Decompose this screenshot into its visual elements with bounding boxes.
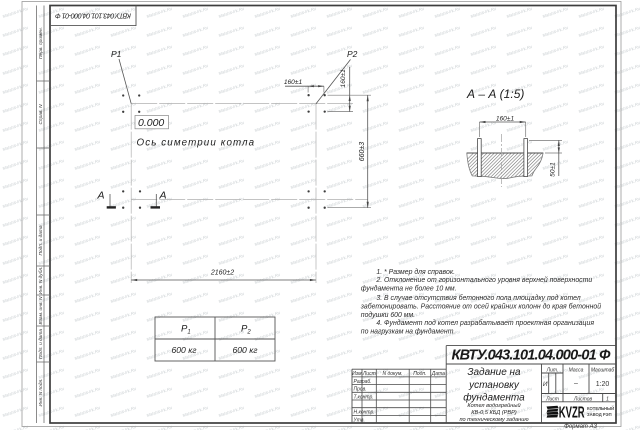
svg-text:600 кг: 600 кг [232,345,258,355]
svg-text:Взам. инв. N: Взам. инв. N [38,296,44,324]
svg-text:600 кг: 600 кг [171,345,197,355]
svg-text:А – А (1:5): А – А (1:5) [466,87,524,101]
svg-text:–: – [573,380,578,387]
svg-text:Инв. N дубл.: Инв. N дубл. [38,267,44,295]
svg-text:Справ. N: Справ. N [38,104,44,125]
svg-text:160±1: 160±1 [496,115,515,122]
svg-text:Н.контр.: Н.контр. [354,410,375,416]
svg-text:Подп. и дата: Подп. и дата [38,329,44,359]
svg-text:Задание на: Задание на [467,367,521,378]
svg-text:Перв. примен.: Перв. примен. [38,27,44,59]
svg-text:160±1: 160±1 [284,79,303,86]
svg-text:КВТУ.043.101.04.000-01 Ф: КВТУ.043.101.04.000-01 Ф [55,12,131,21]
svg-text:Формат А3: Формат А3 [564,424,597,430]
svg-text:Т.контр.: Т.контр. [354,394,374,400]
svg-text:Лит.: Лит. [546,367,559,373]
svg-text:1:20: 1:20 [596,381,610,388]
svg-text:N докум.: N докум. [382,371,402,377]
svg-text:КВ-0,5 КБД (РВР): КВ-0,5 КБД (РВР) [471,410,517,416]
svg-text:P2: P2 [347,49,358,59]
svg-text:Инв. N подл.: Инв. N подл. [38,378,44,406]
svg-text:фундамента не более 10 мм.: фундамента не более 10 мм. [361,284,457,292]
svg-text:2160±2: 2160±2 [210,270,234,277]
svg-text:2. Отклонение от горизонтально: 2. Отклонение от горизонтального уровня … [375,276,592,284]
svg-text:Ось симетрии котла: Ось симетрии котла [137,138,256,149]
svg-text:P1: P1 [111,49,122,59]
svg-text:Пров.: Пров. [354,387,367,393]
svg-text:КВТУ.043.101.04.000-01 Ф: КВТУ.043.101.04.000-01 Ф [452,348,612,364]
svg-text:1: 1 [606,396,609,402]
svg-text:установку: установку [468,380,520,391]
svg-text:по нагрузкам на фундамент.: по нагрузкам на фундамент. [361,327,456,335]
svg-text:Листов: Листов [573,396,593,402]
svg-text:Котел водогрейный: Котел водогрейный [467,402,520,409]
svg-text:660±3: 660±3 [359,142,366,162]
svg-text:4. Фундамент под котел разраба: 4. Фундамент под котел разрабатывает про… [376,319,594,327]
svg-text:забетонировать. Расстояние от: забетонировать. Расстояние от осей крайн… [360,303,601,311]
svg-text:Изм.Лист: Изм.Лист [352,371,376,377]
svg-text:1. * Размер для справок.: 1. * Размер для справок. [376,268,455,276]
svg-text:Лист: Лист [545,396,559,402]
svg-text:ЗАВОД РЭП: ЗАВОД РЭП [587,412,612,417]
svg-text:Дата: Дата [431,371,445,377]
svg-text:фундамента: фундамента [463,392,525,404]
svg-text:Масштаб: Масштаб [591,367,615,373]
svg-text:50±1: 50±1 [550,162,557,177]
svg-text:KVZR: KVZR [559,403,585,421]
svg-text:160±1: 160±1 [340,69,347,88]
svg-text:0.000: 0.000 [138,117,164,129]
svg-text:подушки 600 мм.: подушки 600 мм. [361,311,415,319]
svg-text:А: А [97,190,105,202]
svg-text:по техническому заданию: по техническому заданию [459,417,529,423]
svg-text:Разраб.: Разраб. [354,379,372,385]
svg-text:И: И [543,381,548,388]
svg-text:Утв.: Утв. [354,417,365,423]
svg-text:3. В случае отсутствия бетонно: 3. В случае отсутствия бетонного пола пл… [376,294,580,302]
svg-text:А: А [159,190,167,202]
svg-text:КОТЕЛЬНЫЙ: КОТЕЛЬНЫЙ [587,406,614,411]
svg-text:Масса: Масса [569,367,584,373]
svg-text:Подп.: Подп. [413,371,426,377]
svg-text:Подп. и дата: Подп. и дата [38,225,44,255]
